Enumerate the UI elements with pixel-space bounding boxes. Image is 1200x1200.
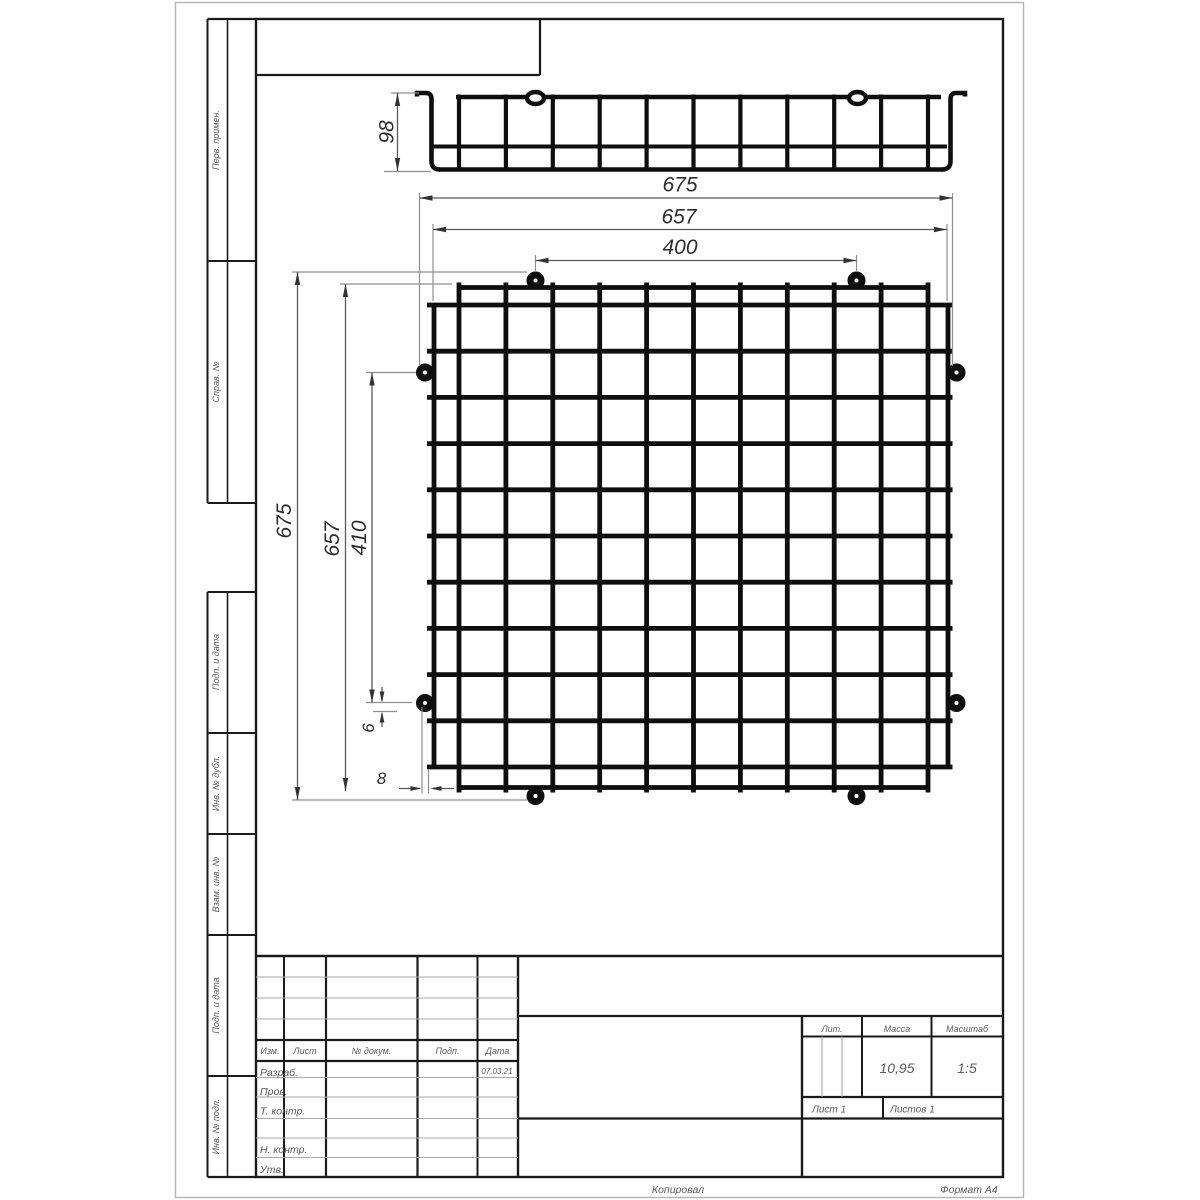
svg-text:Пров.: Пров. — [260, 1086, 288, 1098]
svg-text:675: 675 — [273, 503, 296, 538]
svg-text:Дата: Дата — [485, 1046, 510, 1056]
svg-text:Перв. примен.: Перв. примен. — [211, 110, 221, 170]
svg-text:10,95: 10,95 — [879, 1060, 914, 1076]
svg-text:Утв.: Утв. — [259, 1164, 284, 1176]
svg-text:98: 98 — [376, 120, 399, 144]
svg-text:675: 675 — [662, 174, 697, 197]
svg-text:Лит.: Лит. — [820, 1024, 842, 1034]
svg-text:Масса: Масса — [884, 1024, 911, 1034]
svg-text:Масштаб: Масштаб — [946, 1024, 989, 1034]
svg-text:№ докум.: № докум. — [352, 1046, 392, 1056]
svg-text:Подп.: Подп. — [436, 1046, 460, 1056]
svg-text:07.03.21: 07.03.21 — [481, 1067, 512, 1076]
svg-text:410: 410 — [348, 520, 371, 555]
svg-text:Инв. № подл.: Инв. № подл. — [211, 1099, 221, 1155]
svg-text:8: 8 — [377, 769, 387, 788]
svg-text:Н. контр.: Н. контр. — [260, 1144, 307, 1156]
svg-text:Лист: Лист — [292, 1046, 317, 1056]
svg-text:Взам. инв. №: Взам. инв. № — [211, 856, 221, 912]
svg-text:6: 6 — [359, 723, 378, 733]
svg-text:Инв. № дубл.: Инв. № дубл. — [211, 756, 221, 811]
svg-text:Формат А4: Формат А4 — [940, 1184, 998, 1196]
svg-text:Разраб.: Разраб. — [260, 1067, 298, 1079]
svg-text:Изм.: Изм. — [260, 1046, 279, 1056]
svg-text:Лист 1: Лист 1 — [811, 1105, 846, 1116]
svg-text:Справ. №: Справ. № — [211, 361, 221, 402]
svg-text:657: 657 — [321, 520, 344, 556]
svg-text:Копировал: Копировал — [652, 1184, 704, 1196]
svg-text:400: 400 — [662, 236, 697, 259]
svg-text:657: 657 — [661, 206, 697, 229]
svg-text:Листов 1: Листов 1 — [889, 1105, 935, 1116]
svg-text:Подп. и дата: Подп. и дата — [211, 634, 221, 690]
svg-text:Т. контр.: Т. контр. — [260, 1106, 305, 1118]
svg-text:Подп. и дата: Подп. и дата — [211, 977, 221, 1033]
svg-text:1:5: 1:5 — [957, 1060, 977, 1076]
